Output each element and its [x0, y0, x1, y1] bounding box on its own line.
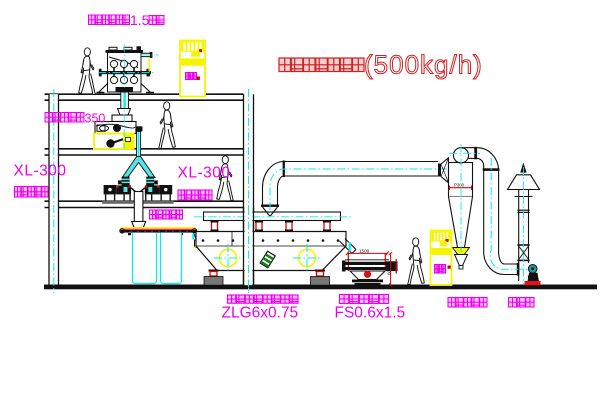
svg-text:1500: 1500 — [359, 249, 370, 254]
svg-text:350: 350 — [85, 112, 106, 126]
svg-text:XL-300: XL-300 — [178, 165, 231, 182]
svg-text:1.5: 1.5 — [130, 12, 150, 28]
svg-text:600: 600 — [387, 267, 392, 275]
svg-text:ZLG6x0.75: ZLG6x0.75 — [222, 305, 299, 322]
svg-text:P300: P300 — [454, 183, 465, 188]
svg-text:XL-300: XL-300 — [14, 163, 67, 180]
svg-text:(500kg/h): (500kg/h) — [364, 50, 483, 80]
svg-text:FS0.6x1.5: FS0.6x1.5 — [335, 305, 406, 322]
